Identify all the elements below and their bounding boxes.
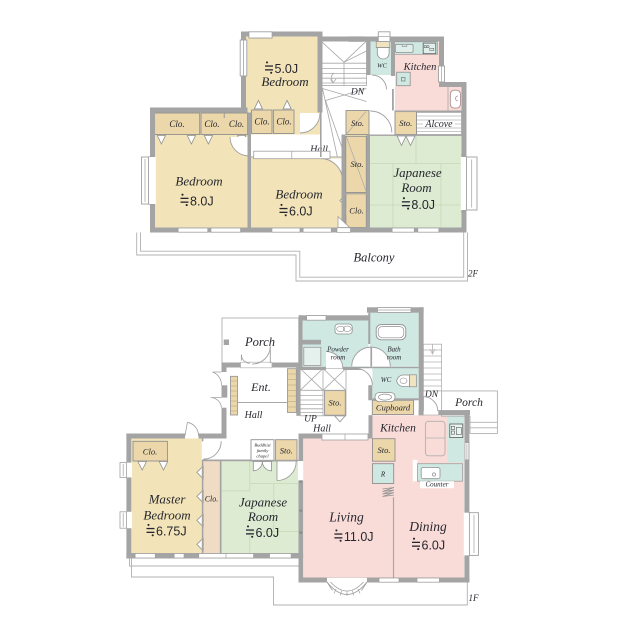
svg-text:Ent.: Ent. <box>250 380 271 394</box>
svg-text:Room: Room <box>400 180 431 195</box>
svg-text:11.0J: 11.0J <box>344 530 374 544</box>
svg-text:Bedroom: Bedroom <box>275 187 322 202</box>
svg-text:Bedroom: Bedroom <box>143 508 190 523</box>
svg-text:6.0J: 6.0J <box>422 538 446 552</box>
svg-text:8.0J: 8.0J <box>411 198 435 212</box>
svg-text:Buddhist: Buddhist <box>254 443 271 448</box>
svg-text:Bedroom: Bedroom <box>175 174 222 189</box>
svg-text:WC: WC <box>377 63 387 70</box>
svg-text:Master: Master <box>148 492 187 507</box>
svg-text:Powder: Powder <box>326 346 349 354</box>
svg-text:Sto.: Sto. <box>351 159 364 169</box>
svg-text:Clo.: Clo. <box>204 119 219 129</box>
svg-text:6.0J: 6.0J <box>289 205 313 219</box>
svg-text:Kitchen: Kitchen <box>379 423 416 435</box>
svg-text:room: room <box>387 354 402 362</box>
svg-text:Clo.: Clo. <box>254 117 269 127</box>
svg-text:room: room <box>331 354 346 362</box>
svg-text:Sto.: Sto. <box>329 398 342 408</box>
svg-text:Sto.: Sto. <box>399 118 412 128</box>
svg-text:Hall: Hall <box>312 424 331 435</box>
svg-text:Clo.: Clo. <box>349 206 363 216</box>
svg-text:6.75J: 6.75J <box>156 525 187 539</box>
svg-text:Balcony: Balcony <box>354 251 395 265</box>
svg-text:Clo.: Clo. <box>229 119 244 129</box>
svg-text:Japanese: Japanese <box>393 165 442 180</box>
svg-text:Dining: Dining <box>408 519 447 534</box>
svg-text:Clo.: Clo. <box>205 495 219 504</box>
svg-text:Porch: Porch <box>454 397 483 409</box>
svg-text:Alcove: Alcove <box>424 119 453 130</box>
svg-text:1F: 1F <box>469 593 480 603</box>
svg-text:Room: Room <box>247 509 278 524</box>
svg-text:Bedroom: Bedroom <box>261 74 308 89</box>
svg-text:Clo.: Clo. <box>276 117 291 127</box>
svg-text:Clo.: Clo. <box>169 119 184 129</box>
svg-text:Sto.: Sto. <box>378 445 391 455</box>
svg-text:Living: Living <box>328 510 364 525</box>
svg-text:Bath: Bath <box>387 346 401 354</box>
svg-text:2F: 2F <box>468 269 479 279</box>
svg-text:Japanese: Japanese <box>239 495 288 510</box>
svg-text:Sto.: Sto. <box>280 446 293 456</box>
svg-text:Sto.: Sto. <box>351 118 364 128</box>
svg-text:Kitchen: Kitchen <box>403 62 437 73</box>
svg-text:chapel: chapel <box>256 454 269 459</box>
svg-text:Counter: Counter <box>426 481 449 489</box>
svg-text:R: R <box>380 471 386 479</box>
svg-text:Clo.: Clo. <box>143 447 157 457</box>
svg-text:family: family <box>257 448 269 453</box>
svg-text:Cupboard: Cupboard <box>376 403 411 413</box>
svg-text:Hall: Hall <box>244 410 263 421</box>
svg-text:8.0J: 8.0J <box>190 194 214 208</box>
svg-text:WC: WC <box>381 376 392 384</box>
svg-text:6.0J: 6.0J <box>256 526 280 540</box>
svg-text:DN: DN <box>350 88 365 98</box>
